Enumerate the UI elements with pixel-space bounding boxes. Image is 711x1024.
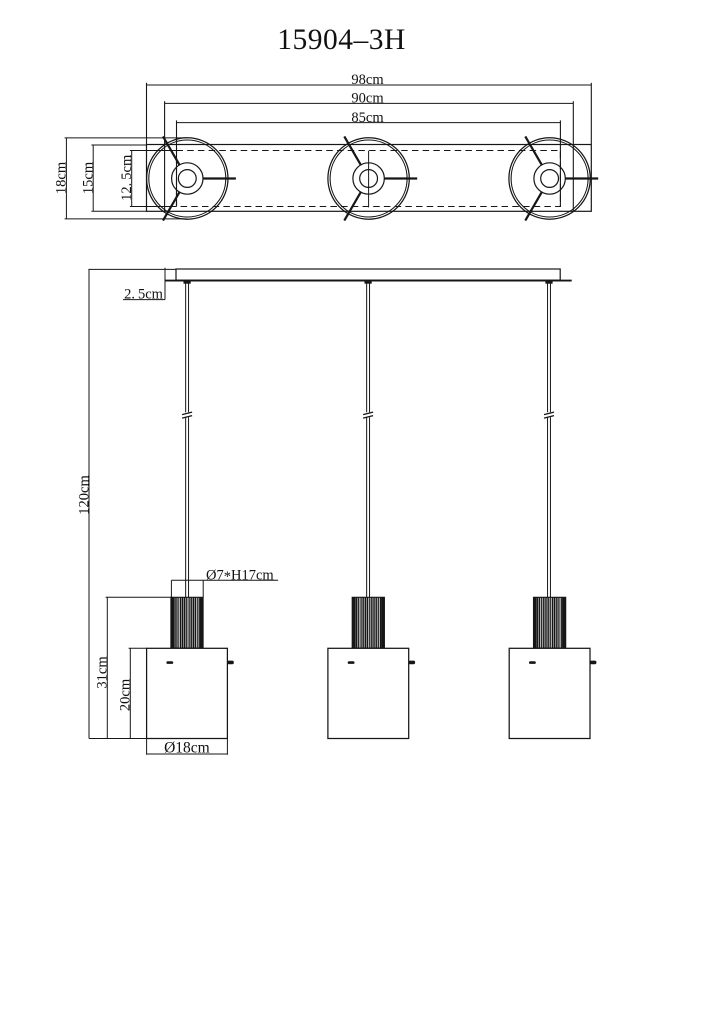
svg-text:2.5cm: 2.5cm bbox=[124, 286, 164, 302]
svg-text:31cm: 31cm bbox=[95, 656, 111, 689]
svg-text:85cm: 85cm bbox=[351, 110, 384, 126]
svg-text:Ø7*H17cm: Ø7*H17cm bbox=[206, 567, 274, 585]
svg-text:120cm: 120cm bbox=[76, 475, 92, 515]
svg-text:20cm: 20cm bbox=[118, 678, 134, 711]
svg-text:98cm: 98cm bbox=[351, 72, 384, 88]
svg-text:18cm: 18cm bbox=[54, 161, 70, 194]
svg-text:Ø18cm: Ø18cm bbox=[164, 739, 210, 756]
svg-text:15904–3H: 15904–3H bbox=[277, 24, 406, 56]
svg-text:15cm: 15cm bbox=[80, 161, 96, 194]
svg-text:12.5cm: 12.5cm bbox=[119, 154, 135, 201]
svg-text:90cm: 90cm bbox=[351, 91, 384, 107]
